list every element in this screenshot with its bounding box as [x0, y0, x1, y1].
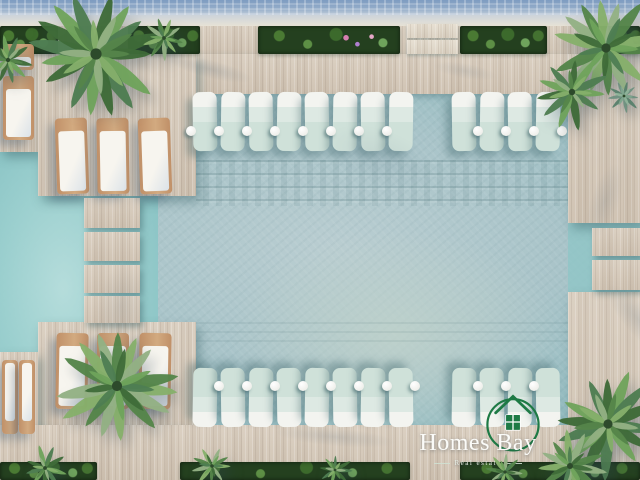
walkway-segment: [84, 232, 140, 261]
pool-lounger: [193, 368, 218, 427]
pool-ball: [270, 126, 280, 136]
pool-lounger: [193, 92, 218, 151]
pool-lounger: [221, 368, 246, 427]
pool-ball: [354, 126, 364, 136]
pool-lounger: [389, 92, 414, 151]
agave-plant: [606, 78, 640, 114]
pool-lounger: [333, 92, 358, 151]
pool-lounger: [249, 92, 274, 151]
pool-lounger: [277, 92, 302, 151]
pool-lounger: [333, 368, 358, 427]
pool-lounger: [249, 368, 274, 427]
pool-ball: [326, 381, 336, 391]
pool-lounger: [361, 92, 386, 151]
pool-lounger: [361, 368, 386, 427]
right-step-segment: [592, 228, 640, 256]
lounger-cushion: [141, 131, 169, 192]
palm-tree: [21, 444, 69, 480]
right-step-segment: [592, 260, 640, 290]
pool-lounger: [305, 368, 330, 427]
pool-ball: [270, 381, 280, 391]
deck-steps-slat: [407, 24, 458, 38]
pool-underwater-steps: [196, 160, 568, 206]
palm-tree: [532, 428, 608, 480]
deck-lounger: [2, 360, 18, 434]
pool-ball: [242, 381, 252, 391]
pool-ball: [354, 381, 364, 391]
lounger-cushion: [58, 131, 86, 192]
palm-tree: [140, 14, 188, 62]
pool-ball: [501, 126, 511, 136]
pool-lounger: [480, 92, 505, 151]
palm-tree: [53, 322, 181, 450]
pool-ball: [298, 126, 308, 136]
deck-lounger: [96, 118, 129, 195]
palm-tree: [485, 452, 525, 480]
pool-lounger: [277, 368, 302, 427]
pool-lounger: [452, 92, 477, 151]
pool-ball: [186, 126, 196, 136]
deck-lounger: [138, 117, 173, 194]
walkway-segment: [84, 296, 140, 323]
subtitle-dash-left: [434, 463, 450, 464]
pool-ball: [326, 126, 336, 136]
pool-ball: [382, 126, 392, 136]
palm-tree: [532, 52, 612, 132]
palm-tree: [0, 32, 36, 88]
pool-lounger: [305, 92, 330, 151]
deck-lounger: [55, 117, 90, 194]
deck-steps-slat: [407, 40, 458, 54]
lounger-cushion: [100, 131, 127, 191]
pool-ball: [473, 126, 483, 136]
pool-ball: [214, 381, 224, 391]
walkway-segment: [84, 265, 140, 293]
planter-box: [460, 26, 547, 54]
palm-tree: [317, 452, 353, 480]
pool-ball: [298, 381, 308, 391]
pool-ball: [382, 381, 392, 391]
flower-planter: [258, 26, 400, 54]
pool-aerial-render: Homes Bay Real estate: [0, 0, 640, 480]
pool-lounger: [221, 92, 246, 151]
palm-tree: [190, 444, 234, 480]
walkway-segment: [84, 198, 140, 228]
pool-ball: [214, 126, 224, 136]
pool-lounger: [508, 92, 533, 151]
pool-ball: [242, 126, 252, 136]
lounger-cushion: [22, 363, 32, 421]
deck-lounger: [19, 360, 35, 434]
pool-underwater-steps-lower: [196, 322, 568, 344]
lounger-cushion: [5, 363, 15, 421]
